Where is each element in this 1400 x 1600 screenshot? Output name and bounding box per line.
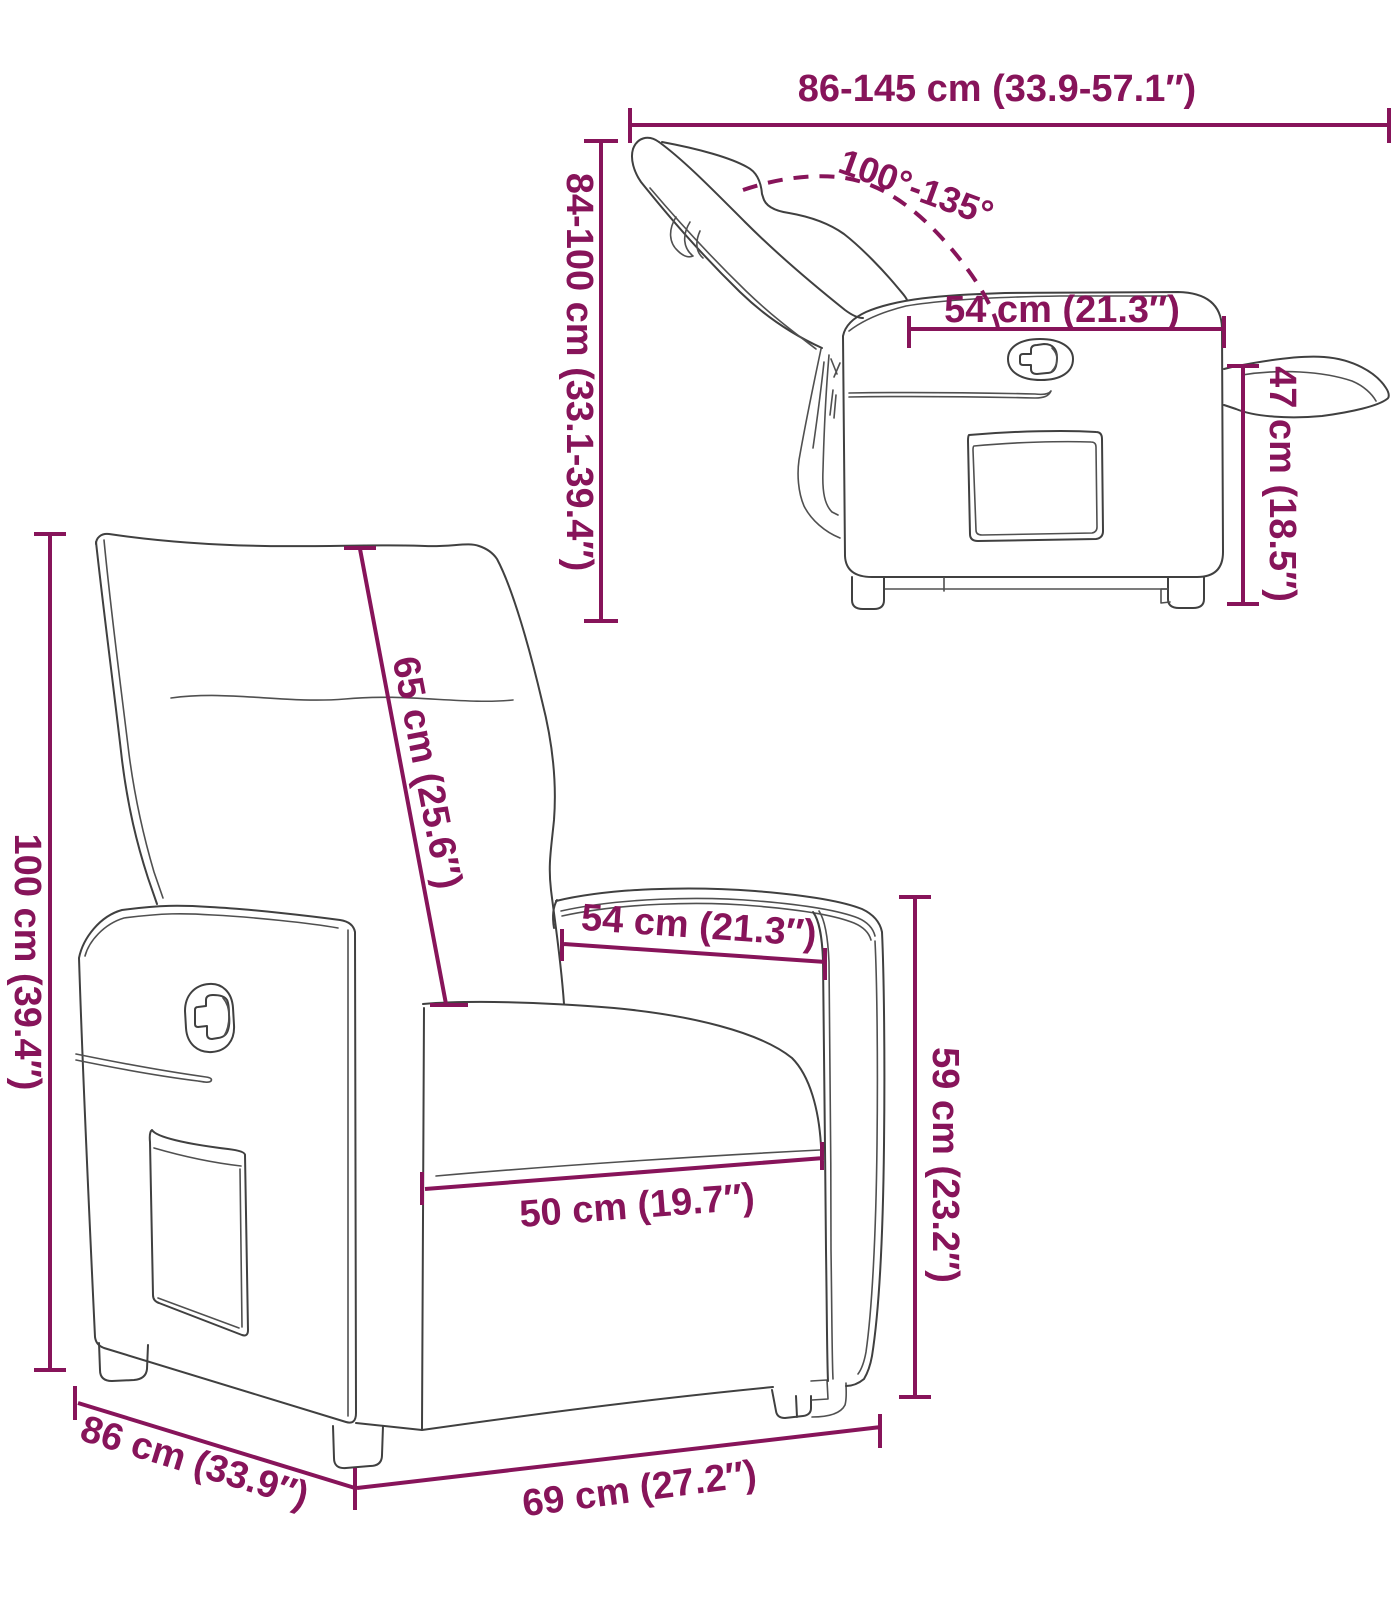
svg-text:100 cm (39.4″): 100 cm (39.4″) xyxy=(6,834,48,1091)
svg-text:86-145 cm (33.9-57.1″): 86-145 cm (33.9-57.1″) xyxy=(798,68,1196,110)
svg-text:47 cm (18.5″): 47 cm (18.5″) xyxy=(1261,366,1303,602)
svg-text:84-100 cm (33.1-39.4″): 84-100 cm (33.1-39.4″) xyxy=(558,173,600,571)
svg-text:54 cm (21.3″): 54 cm (21.3″) xyxy=(944,289,1180,331)
svg-text:59 cm (23.2″): 59 cm (23.2″) xyxy=(924,1047,966,1283)
